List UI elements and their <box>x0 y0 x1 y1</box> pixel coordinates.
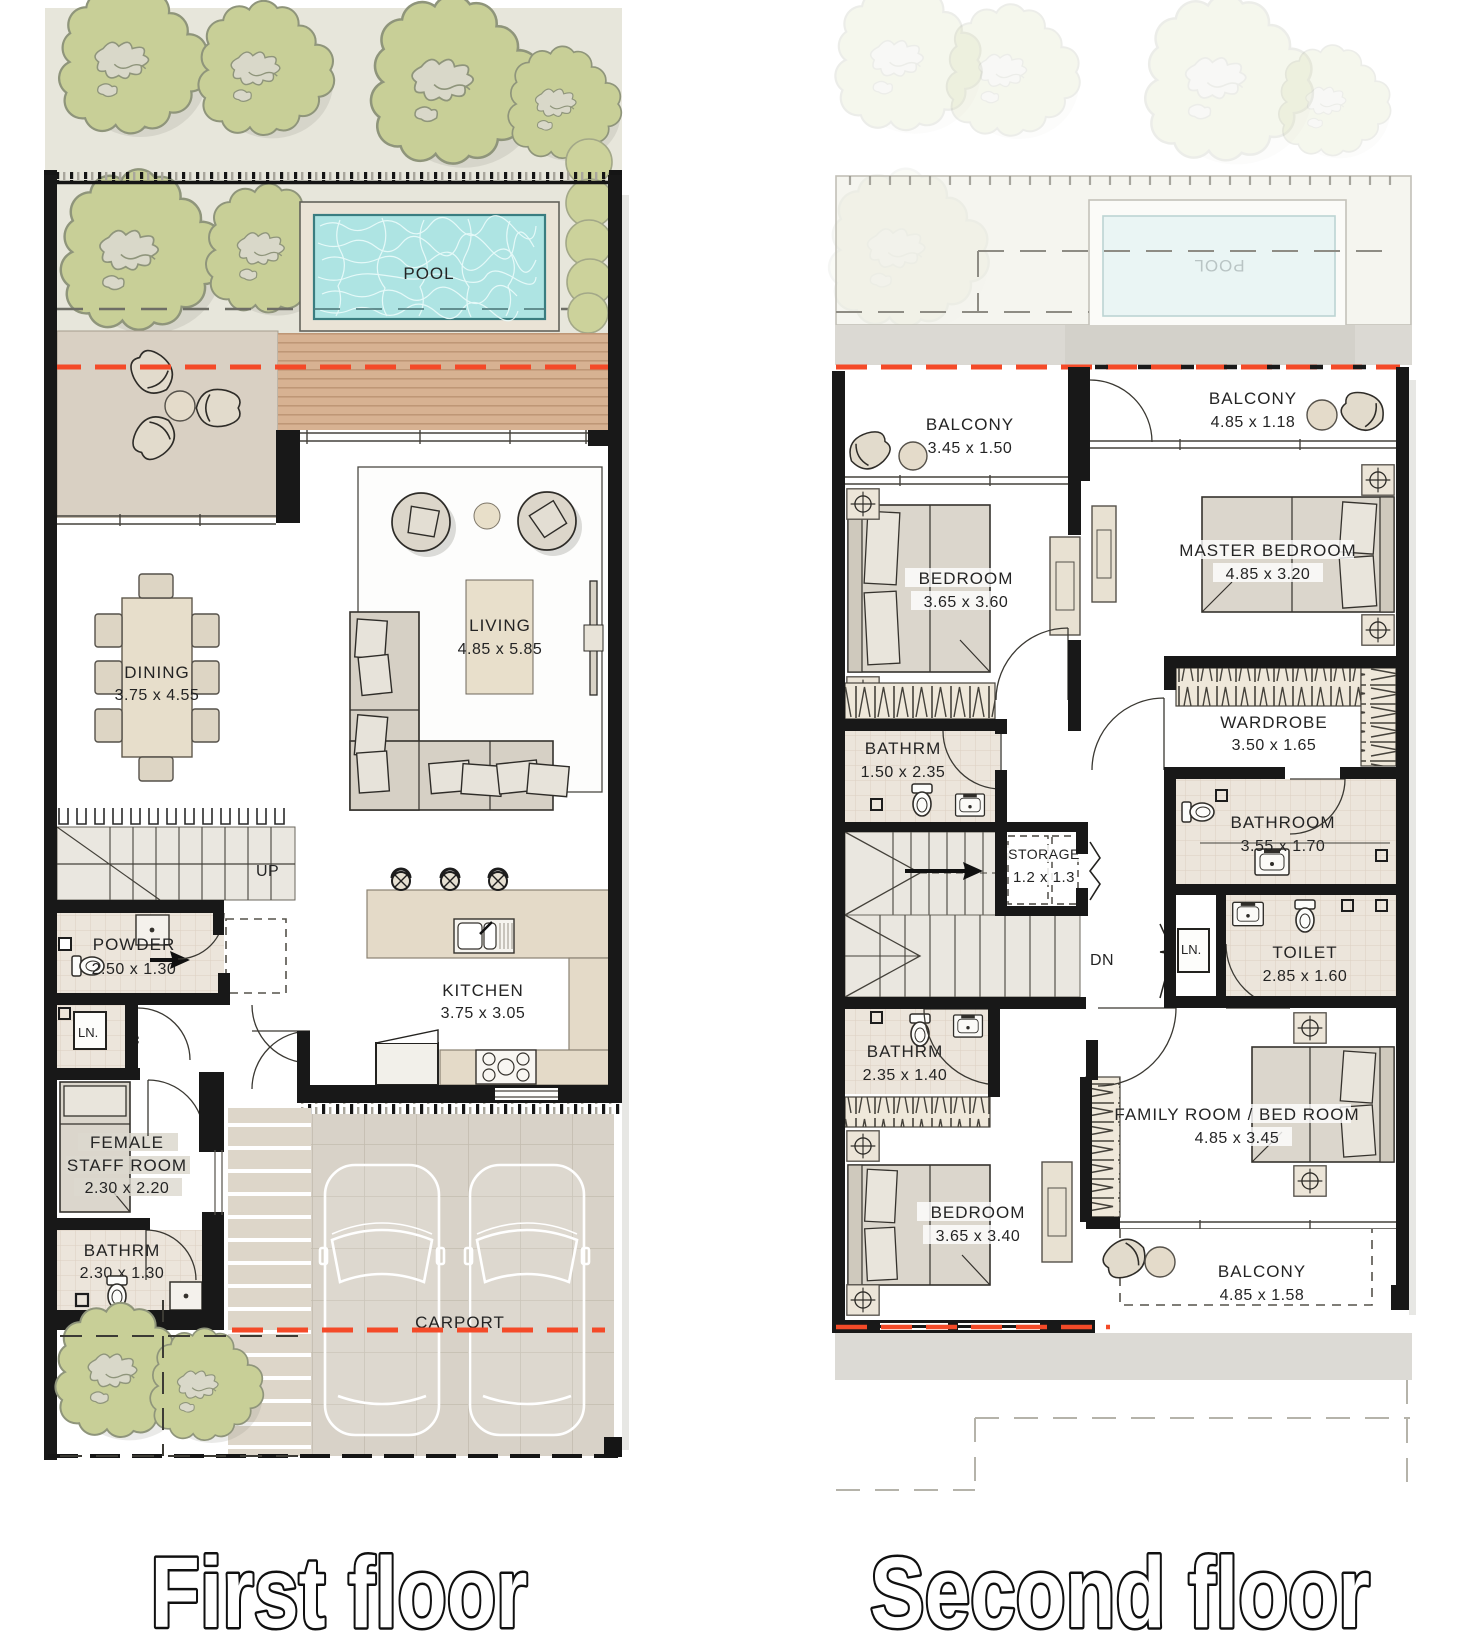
svg-text:BATHRM: BATHRM <box>867 1042 944 1061</box>
svg-text:4.85 x 1.58: 4.85 x 1.58 <box>1220 1287 1305 1304</box>
svg-text:BALCONY: BALCONY <box>926 415 1014 434</box>
svg-text:3.50 x 1.65: 3.50 x 1.65 <box>1232 737 1317 754</box>
svg-text:3.65 x 3.40: 3.65 x 3.40 <box>936 1228 1021 1245</box>
svg-text:2.35 x 1.40: 2.35 x 1.40 <box>863 1067 948 1084</box>
svg-text:3.45 x 1.50: 3.45 x 1.50 <box>928 440 1013 457</box>
svg-text:3.65 x 3.60: 3.65 x 3.60 <box>924 594 1009 611</box>
svg-text:LN.: LN. <box>1181 942 1201 957</box>
svg-text:First floor: First floor <box>151 1537 528 1640</box>
svg-text:MASTER BEDROOM: MASTER BEDROOM <box>1179 541 1356 560</box>
svg-text:TOILET: TOILET <box>1272 943 1337 962</box>
svg-text:BEDROOM: BEDROOM <box>919 569 1014 588</box>
svg-text:4.85 x 1.18: 4.85 x 1.18 <box>1211 414 1296 431</box>
svg-text:DINING: DINING <box>124 663 190 682</box>
svg-text:BEDROOM: BEDROOM <box>931 1203 1026 1222</box>
svg-text:POOL: POOL <box>1193 256 1244 275</box>
svg-text:BATHRM: BATHRM <box>84 1241 161 1260</box>
svg-text:FEMALE: FEMALE <box>90 1133 164 1152</box>
svg-text:KITCHEN: KITCHEN <box>442 981 524 1000</box>
svg-text:LN.: LN. <box>78 1025 98 1040</box>
svg-text:WARDROBE: WARDROBE <box>1220 713 1328 732</box>
svg-text:BALCONY: BALCONY <box>1209 389 1297 408</box>
svg-text:2.85 x 1.60: 2.85 x 1.60 <box>1263 968 1348 985</box>
svg-text:2.50 x 1.30: 2.50 x 1.30 <box>92 961 177 978</box>
svg-text:4.85 x 3.45: 4.85 x 3.45 <box>1195 1130 1280 1147</box>
svg-text:UP: UP <box>256 863 279 880</box>
svg-text:1.2 x 1.3: 1.2 x 1.3 <box>1013 869 1075 886</box>
svg-text:FAMILY ROOM / BED ROOM: FAMILY ROOM / BED ROOM <box>1114 1105 1359 1124</box>
svg-text:POOL: POOL <box>403 264 454 283</box>
svg-text:BALCONY: BALCONY <box>1218 1262 1306 1281</box>
svg-text:STAFF ROOM: STAFF ROOM <box>67 1156 187 1175</box>
svg-text:3.75 x 4.55: 3.75 x 4.55 <box>115 687 200 704</box>
svg-text:Second floor: Second floor <box>870 1537 1370 1640</box>
svg-text:POWDER: POWDER <box>93 935 176 954</box>
svg-text:BATHROOM: BATHROOM <box>1231 813 1336 832</box>
svg-text:3.75 x 3.05: 3.75 x 3.05 <box>441 1005 526 1022</box>
svg-text:3.55 x 1.70: 3.55 x 1.70 <box>1241 838 1326 855</box>
svg-text:4.85 x 3.20: 4.85 x 3.20 <box>1226 566 1311 583</box>
svg-text:DN: DN <box>1090 952 1114 969</box>
svg-text:LIVING: LIVING <box>469 616 531 635</box>
svg-text:BATHRM: BATHRM <box>865 739 942 758</box>
svg-text:1.50 x 2.35: 1.50 x 2.35 <box>861 764 946 781</box>
svg-text:STORAGE: STORAGE <box>1008 846 1080 862</box>
svg-text:4.85 x 5.85: 4.85 x 5.85 <box>458 641 543 658</box>
svg-text:2.30 x 2.20: 2.30 x 2.20 <box>85 1180 170 1197</box>
